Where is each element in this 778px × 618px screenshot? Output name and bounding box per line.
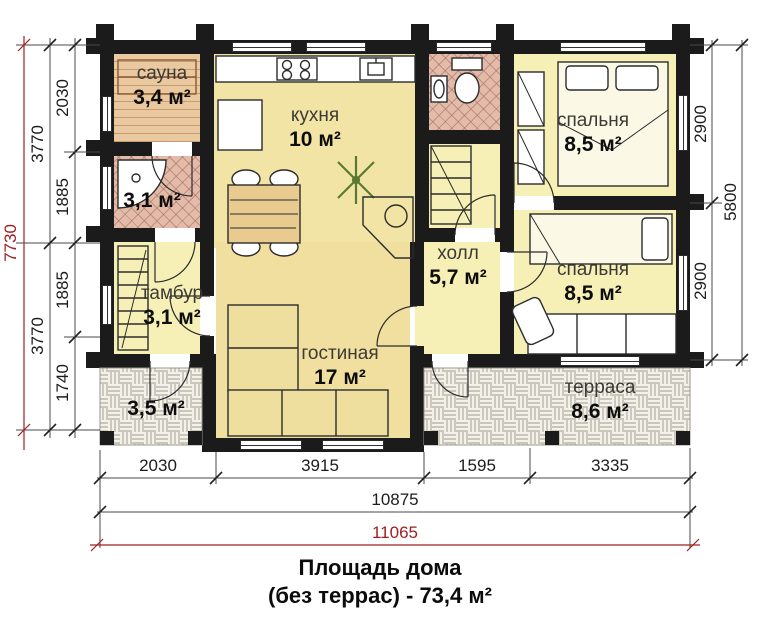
room-name: терраса bbox=[565, 376, 636, 400]
room-area: 8,6 м² bbox=[565, 400, 636, 424]
room-area: 3,4 м² bbox=[133, 86, 191, 110]
room-area: 3,1 м² bbox=[123, 189, 181, 213]
dim-bottom-4: 3335 bbox=[591, 456, 629, 476]
dim-left-mid-1: 3770 bbox=[28, 125, 48, 163]
dim-bottom-3: 1595 bbox=[458, 456, 496, 476]
dim-bottom-mid: 10875 bbox=[371, 490, 418, 510]
title-line-1: Площадь дома bbox=[100, 554, 660, 582]
room-name: кухня bbox=[289, 104, 341, 128]
dim-left-4: 1740 bbox=[53, 364, 73, 402]
title-line-2: (без террас) - 73,4 м² bbox=[100, 582, 660, 610]
room-label-shower: 3,1 м² bbox=[123, 189, 181, 213]
room-label-kitchen: кухня 10 м² bbox=[289, 104, 341, 152]
closet-shelves bbox=[431, 146, 471, 224]
room-area: 8,5 м² bbox=[557, 282, 629, 306]
dim-left-3: 1885 bbox=[53, 271, 73, 309]
dim-left-total: 7730 bbox=[1, 224, 21, 262]
desk bbox=[363, 197, 413, 258]
dim-left-1: 2030 bbox=[53, 79, 73, 117]
room-area: 3,5 м² bbox=[127, 397, 185, 421]
stove bbox=[277, 58, 317, 80]
room-label-sauna: сауна 3,4 м² bbox=[133, 62, 191, 110]
dim-right-total: 5800 bbox=[721, 183, 741, 221]
room-name: спальня bbox=[557, 109, 629, 133]
room-label-bedroom1: спальня 8,5 м² bbox=[557, 109, 629, 157]
room-label-hall: холл 5,7 м² bbox=[429, 242, 487, 290]
room-name: холл bbox=[429, 242, 487, 266]
toilet bbox=[452, 58, 482, 103]
room-name: гостиная bbox=[301, 342, 378, 366]
floor-plan: сауна 3,4 м² 3,1 м² тамбур 3,1 м² кухня … bbox=[0, 0, 778, 618]
dim-right-2: 2900 bbox=[691, 262, 711, 300]
room-name: спальня bbox=[557, 258, 629, 282]
room-label-terrace: терраса 8,6 м² bbox=[565, 376, 636, 424]
plan-title: Площадь дома (без террас) - 73,4 м² bbox=[100, 554, 660, 610]
room-label-living: гостиная 17 м² bbox=[301, 342, 378, 390]
room-area: 8,5 м² bbox=[557, 133, 629, 157]
wash-basin bbox=[431, 76, 447, 102]
dim-bottom-total: 11065 bbox=[372, 523, 418, 543]
bed-single bbox=[530, 214, 672, 264]
room-label-bedroom2: спальня 8,5 м² bbox=[557, 258, 629, 306]
dim-left-mid-2: 3770 bbox=[28, 317, 48, 355]
room-name: сауна bbox=[133, 62, 191, 86]
room-label-terrace-small: 3,5 м² bbox=[127, 397, 185, 421]
sink bbox=[360, 58, 392, 80]
room-area: 3,1 м² bbox=[141, 306, 203, 330]
room-name: тамбур bbox=[141, 282, 203, 306]
dining-table bbox=[228, 170, 300, 256]
terrace-deck bbox=[424, 368, 690, 445]
room-area: 10 м² bbox=[289, 128, 341, 152]
dim-left-2: 1885 bbox=[53, 178, 73, 216]
dim-bottom-2: 3915 bbox=[301, 456, 339, 476]
room-area: 17 м² bbox=[301, 366, 378, 390]
dim-right-1: 2900 bbox=[691, 105, 711, 143]
room-label-tambour: тамбур 3,1 м² bbox=[141, 282, 203, 330]
dim-bottom-1: 2030 bbox=[139, 456, 177, 476]
room-area: 5,7 м² bbox=[429, 266, 487, 290]
